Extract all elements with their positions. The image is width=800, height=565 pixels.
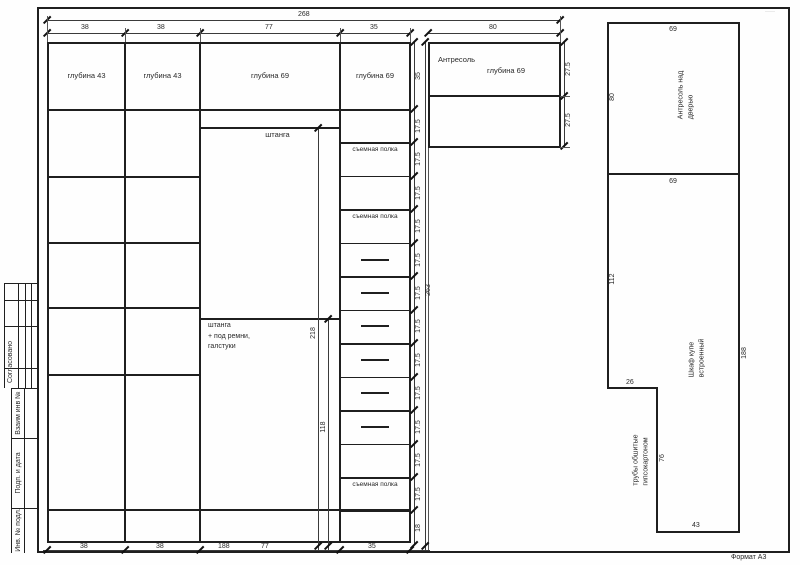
- tb-line: [25, 283, 26, 388]
- drawer-handle: [361, 392, 389, 394]
- dim-line-80: [428, 33, 560, 34]
- plan-closet-label-line: Шкаф купе: [688, 339, 698, 378]
- chain-dim-label: 17.5: [415, 186, 423, 200]
- plan-antresol-width-dim: 69: [640, 26, 706, 34]
- chain-dim-label: 17.5: [415, 253, 423, 267]
- col-width-dim: 38: [157, 24, 165, 32]
- plan-pipes-label: трубы обшитые гипсокартоном: [632, 434, 651, 485]
- stamp-cell-label: Инв. № подл.: [15, 508, 23, 552]
- antresol-left: [428, 42, 430, 148]
- rod2-label-line: галстуки: [208, 342, 250, 353]
- rod2-label-line: штанга: [208, 321, 250, 332]
- chain-dim-label: 35: [415, 72, 423, 80]
- plan-closet-bottom: [656, 531, 740, 533]
- total-height-dim: 263: [425, 284, 433, 296]
- ext-line: [560, 96, 570, 97]
- rod2-height-dim: 118: [320, 421, 328, 432]
- shelf-line: [341, 310, 409, 312]
- rod2-label: штанга + под ремни, галстуки: [208, 321, 250, 353]
- frame-right: [788, 7, 790, 553]
- shelf-line: [341, 109, 409, 111]
- plan-closet-right-dim: 188: [741, 347, 749, 359]
- plan-antresol-label: Антресоль над дверью: [677, 71, 696, 119]
- column-depth-label: глубина 69: [341, 71, 409, 80]
- rod2-label-line: + под ремни,: [208, 332, 250, 343]
- wardrobe-wall: [199, 42, 201, 543]
- shelf-line: [341, 377, 409, 379]
- frame-bottom: [37, 551, 790, 553]
- antresol-bottom: [428, 146, 561, 148]
- plan-closet-label-line: встроенный: [697, 339, 707, 378]
- bottom-dim: 38: [156, 543, 164, 551]
- shelf-line: [341, 209, 409, 211]
- plan-pipes-label-line: трубы обшитые: [632, 434, 642, 485]
- antresol-mid: [428, 95, 561, 97]
- shelf-line: [341, 176, 409, 178]
- bottom-dim: 77: [261, 543, 269, 551]
- shelf-line: [47, 307, 201, 309]
- column-depth-label: глубина 69: [201, 71, 339, 80]
- wardrobe-wall: [47, 42, 49, 543]
- dim-line-263: [425, 42, 426, 551]
- rod-label: штанга: [240, 130, 315, 139]
- bottom-dim: 38: [80, 543, 88, 551]
- drawer-handle: [361, 325, 389, 327]
- shelf-line: [341, 410, 409, 412]
- drawer-handle: [361, 259, 389, 261]
- ext-line: [47, 16, 48, 42]
- dim-line-118: [328, 319, 329, 551]
- plan-antresol-top: [607, 22, 740, 24]
- col-width-dim: 38: [81, 24, 89, 32]
- shelf-line: [341, 444, 409, 446]
- antresol-width-dim: 80: [489, 24, 497, 32]
- tb-line: [24, 388, 25, 553]
- col-width-dim: 77: [265, 24, 273, 32]
- chain-dim-label: 17.5: [415, 453, 423, 467]
- antresol-label: Антресоль: [438, 55, 475, 64]
- dim-line-cols: [47, 33, 411, 34]
- shelf-line: [341, 276, 409, 278]
- removable-shelf-label: съемная полка: [341, 145, 409, 154]
- shelf-line: [47, 374, 201, 376]
- ext-line: [560, 16, 561, 42]
- plan-antresol-right: [738, 22, 740, 175]
- plan-antresol-height-dim: 80: [609, 93, 617, 101]
- plan-divider: [607, 173, 740, 175]
- ext-line: [125, 28, 126, 42]
- antresol-depth-label: глубина 69: [487, 66, 525, 75]
- drawer-handle: [361, 359, 389, 361]
- ext-line: [340, 28, 341, 42]
- tb-line: [4, 300, 38, 301]
- antresol-top: [428, 42, 561, 44]
- dim-line-218: [318, 128, 319, 551]
- plan-closet-label: Шкаф купе встроенный: [688, 339, 707, 378]
- col-width-dim: 35: [370, 24, 378, 32]
- plan-closet-width-dim: 69: [640, 178, 706, 186]
- drawer-handle: [361, 426, 389, 428]
- shelf-line: [47, 176, 201, 178]
- chain-dim-label: 17.5: [415, 320, 423, 334]
- plan-antresol-label-line: дверью: [686, 71, 696, 119]
- frame-left: [37, 7, 39, 553]
- plan-bottom-dim: 43: [692, 522, 700, 530]
- shelf-line: [341, 510, 409, 512]
- ext-line: [410, 28, 411, 42]
- chain-dim-label: 17.5: [415, 219, 423, 233]
- plan-closet-right: [738, 175, 740, 533]
- ext-line: [200, 28, 201, 42]
- plan-step: [607, 387, 658, 389]
- bottom-dim: 188: [218, 543, 230, 551]
- chain-dim-label: 17.5: [415, 353, 423, 367]
- chain-dim-label: 17.5: [415, 420, 423, 434]
- stamp-cell-label: Подп. и дата: [15, 452, 23, 493]
- column-depth-label: глубина 43: [49, 71, 124, 80]
- shelf-line: [341, 343, 409, 345]
- rod-line: [200, 318, 340, 320]
- plan-pipe-wall: [656, 387, 658, 533]
- tb-line: [4, 326, 38, 327]
- shelf-line: [341, 243, 409, 245]
- chain-dim-label: 17.5: [415, 386, 423, 400]
- plan-antresol-label-line: Антресоль над: [677, 71, 687, 119]
- wardrobe-wall: [124, 42, 126, 543]
- antresol-row-dim: 27.5: [565, 113, 573, 127]
- dim-line-268: [47, 20, 560, 21]
- shelf-line: [341, 142, 409, 144]
- chain-dim-label: 17.5: [415, 119, 423, 133]
- removable-shelf-label: съемная полка: [341, 480, 409, 489]
- antresol-right: [559, 42, 561, 148]
- drawer-handle: [361, 292, 389, 294]
- drawing-sheet: ····· Формат А3 Согласовано Взаим инв № …: [0, 0, 800, 565]
- tb-line: [31, 283, 32, 388]
- plan-pipes-label-line: гипсокартоном: [641, 434, 651, 485]
- column-depth-label: глубина 43: [126, 71, 199, 80]
- chain-dim-label: 17.5: [415, 487, 423, 501]
- plan-closet-left-dim: 112: [609, 273, 617, 284]
- tb-line: [4, 283, 38, 284]
- dim-tick: [560, 142, 568, 150]
- tb-line: [18, 283, 19, 388]
- removable-shelf-label: съемная полка: [341, 212, 409, 221]
- total-width-dim: 268: [298, 11, 310, 19]
- format-label: Формат А3: [731, 554, 766, 562]
- tb-line: [4, 283, 5, 388]
- rod-height-dim: 218: [310, 327, 318, 339]
- chain-dim-label: 18: [415, 524, 423, 532]
- corner-mark: ·····: [765, 8, 775, 16]
- wardrobe-top: [47, 42, 411, 44]
- shelf-line: [341, 477, 409, 479]
- bottom-dim: 35: [368, 543, 376, 551]
- tb-line: [11, 388, 12, 553]
- plan-step-dim: 26: [626, 379, 634, 387]
- plan-pipe-dim: 76: [659, 454, 667, 462]
- chain-dim-label: 17.5: [415, 152, 423, 166]
- wardrobe-wall: [339, 42, 341, 543]
- antresol-ext-line: [428, 148, 429, 551]
- antresol-row-dim: 27.5: [565, 62, 573, 76]
- stamp-cell-label: Взаим инв №: [15, 391, 23, 434]
- wardrobe-wall: [409, 42, 411, 543]
- frame-top: [37, 7, 790, 9]
- ext-line: [560, 147, 570, 148]
- approved-label: Согласовано: [7, 341, 15, 383]
- chain-dim-label: 17.5: [415, 286, 423, 300]
- shelf-line: [47, 242, 201, 244]
